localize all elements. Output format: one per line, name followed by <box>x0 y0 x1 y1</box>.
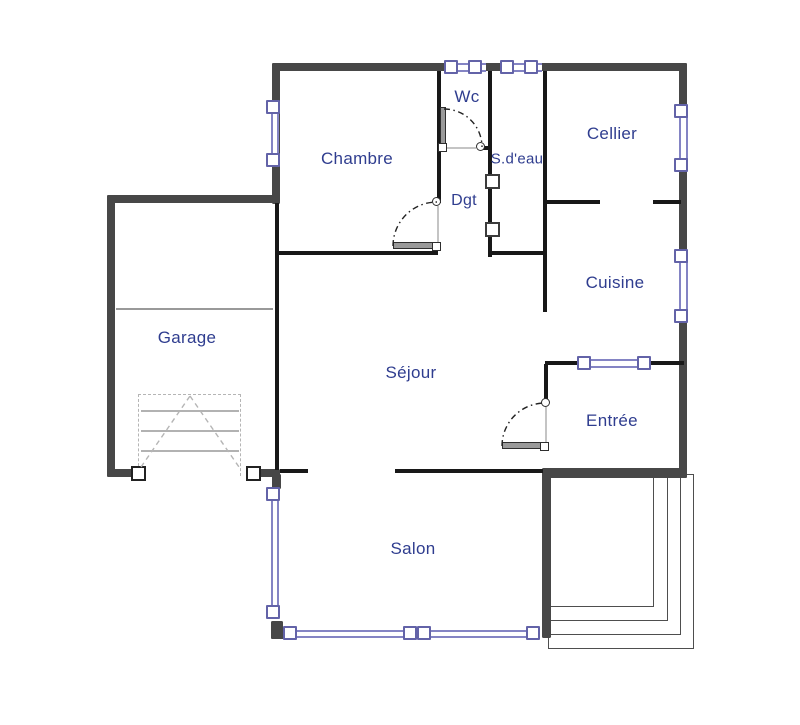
room-label-cellier: Cellier <box>587 124 637 144</box>
door-strike-icon <box>476 142 485 151</box>
window-frame-icon <box>674 104 688 118</box>
window-frame-icon <box>266 605 280 619</box>
interior-wall-entree-west <box>544 364 548 401</box>
door-strike-icon <box>541 398 550 407</box>
window-frame-icon <box>674 249 688 263</box>
exterior-wall-garage-top <box>107 195 280 203</box>
garage-inner-line <box>116 308 273 310</box>
room-label-chambre: Chambre <box>321 149 393 169</box>
entree-leaf <box>502 442 542 449</box>
window-frame-icon <box>526 626 540 640</box>
door-frame-line-1 <box>447 147 476 149</box>
interior-wall-cellier-cuisine-a <box>547 200 600 204</box>
window-frame-icon <box>266 487 280 501</box>
window-frame-icon <box>468 60 482 74</box>
window-glazing-9 <box>271 491 279 611</box>
window-frame-icon <box>674 158 688 172</box>
window-frame-icon <box>266 153 280 167</box>
interior-wall-sdeau-bottom <box>488 251 546 255</box>
interior-wall-sejour-salon-main <box>395 469 543 473</box>
window-frame-icon <box>524 60 538 74</box>
exterior-wall-entree-bottom <box>543 468 687 478</box>
room-label-entree: Entrée <box>586 411 638 431</box>
window-frame-icon <box>403 626 417 640</box>
exterior-wall-salon-east <box>542 468 551 638</box>
room-label-garage: Garage <box>158 328 217 348</box>
door-pivot-icon <box>540 442 549 451</box>
window-glazing-5 <box>424 630 532 638</box>
room-label-dgt: Dgt <box>451 192 477 210</box>
window-frame-icon <box>674 309 688 323</box>
terrace-step-4 <box>548 474 694 649</box>
partition-node-icon <box>485 222 500 237</box>
room-label-salon: Salon <box>391 539 436 559</box>
interior-wall-sejour-west <box>275 203 279 470</box>
window-frame-icon <box>266 100 280 114</box>
garage-door-slat-3 <box>141 450 239 452</box>
garage-door-slat-2 <box>141 430 239 432</box>
interior-wall-chambre-bottom <box>278 251 438 255</box>
garage-door-slat-1 <box>141 410 239 412</box>
interior-wall-cuisine-west <box>543 71 547 312</box>
garage-pillar-icon <box>246 466 261 481</box>
window-frame-icon <box>417 626 431 640</box>
window-frame-icon <box>500 60 514 74</box>
interior-wall-sejour-salon-stub <box>280 469 308 473</box>
door-pivot-icon <box>438 143 447 152</box>
window-frame-icon <box>283 626 297 640</box>
door-frame-line-3 <box>545 407 547 442</box>
interior-wall-cellier-cuisine-b <box>653 200 681 204</box>
door-swing-arc-1 <box>444 109 482 147</box>
window-frame-icon <box>637 356 651 370</box>
door-strike-icon <box>432 197 441 206</box>
exterior-wall-garage-left <box>107 195 115 477</box>
wc-leaf <box>440 107 446 147</box>
room-label-cuisine: Cuisine <box>586 273 645 293</box>
floor-plan-canvas: ChambreWcS.d'eauCellierDgtCuisineGarageS… <box>0 0 800 725</box>
window-frame-icon <box>444 60 458 74</box>
garage-door-outline <box>138 394 241 476</box>
room-label-sdeau: S.d'eau <box>491 151 544 168</box>
door-frame-line-2 <box>437 206 439 242</box>
garage-pillar-icon <box>131 466 146 481</box>
window-glazing-4 <box>287 630 409 638</box>
door-swing-arc-3 <box>502 403 545 446</box>
door-swing-arc-2 <box>393 202 437 246</box>
chambre-leaf <box>393 242 437 249</box>
room-label-sejour: Séjour <box>386 363 437 383</box>
window-frame-icon <box>577 356 591 370</box>
partition-node-icon <box>485 174 500 189</box>
door-pivot-icon <box>432 242 441 251</box>
room-label-wc: Wc <box>454 87 479 107</box>
